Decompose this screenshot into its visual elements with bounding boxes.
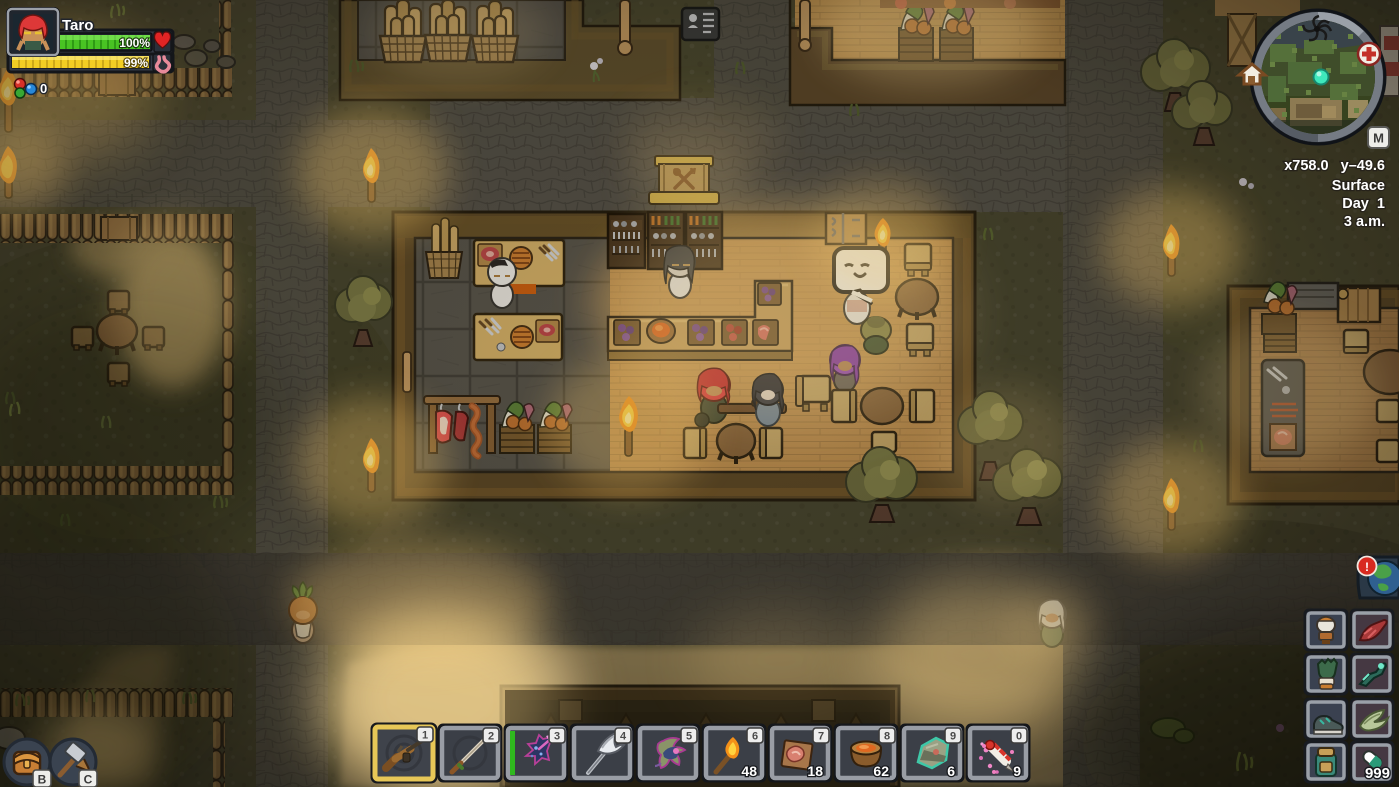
svg-text:18: 18 bbox=[807, 763, 823, 779]
svg-text:48: 48 bbox=[741, 763, 757, 779]
svg-text:62: 62 bbox=[873, 763, 889, 779]
svg-text:C: C bbox=[84, 773, 93, 787]
svg-text:100%: 100% bbox=[119, 36, 150, 50]
svg-text:8: 8 bbox=[884, 731, 890, 743]
svg-text:0: 0 bbox=[1016, 731, 1022, 743]
svg-text:6: 6 bbox=[752, 731, 758, 743]
svg-text:M: M bbox=[1373, 131, 1384, 146]
svg-text:3 a.m.: 3 a.m. bbox=[1344, 214, 1385, 230]
svg-text:Taro: Taro bbox=[62, 17, 93, 34]
svg-text:999: 999 bbox=[1365, 765, 1390, 782]
svg-text:!: ! bbox=[1365, 560, 1369, 574]
svg-text:2: 2 bbox=[488, 731, 494, 743]
svg-text:x758.0 y–49.6: x758.0 y–49.6 bbox=[1284, 158, 1385, 174]
svg-text:7: 7 bbox=[818, 731, 824, 743]
svg-text:6: 6 bbox=[947, 763, 955, 779]
svg-text:9: 9 bbox=[1013, 763, 1021, 779]
svg-text:0: 0 bbox=[40, 81, 47, 96]
svg-text:B: B bbox=[38, 773, 47, 787]
svg-text:Surface: Surface bbox=[1332, 178, 1385, 194]
svg-text:Day 1: Day 1 bbox=[1342, 196, 1385, 212]
svg-text:3: 3 bbox=[554, 731, 560, 743]
svg-text:99%: 99% bbox=[124, 56, 148, 70]
svg-text:4: 4 bbox=[620, 731, 627, 743]
svg-text:5: 5 bbox=[686, 731, 692, 743]
svg-text:9: 9 bbox=[950, 731, 956, 743]
svg-text:1: 1 bbox=[422, 730, 428, 742]
